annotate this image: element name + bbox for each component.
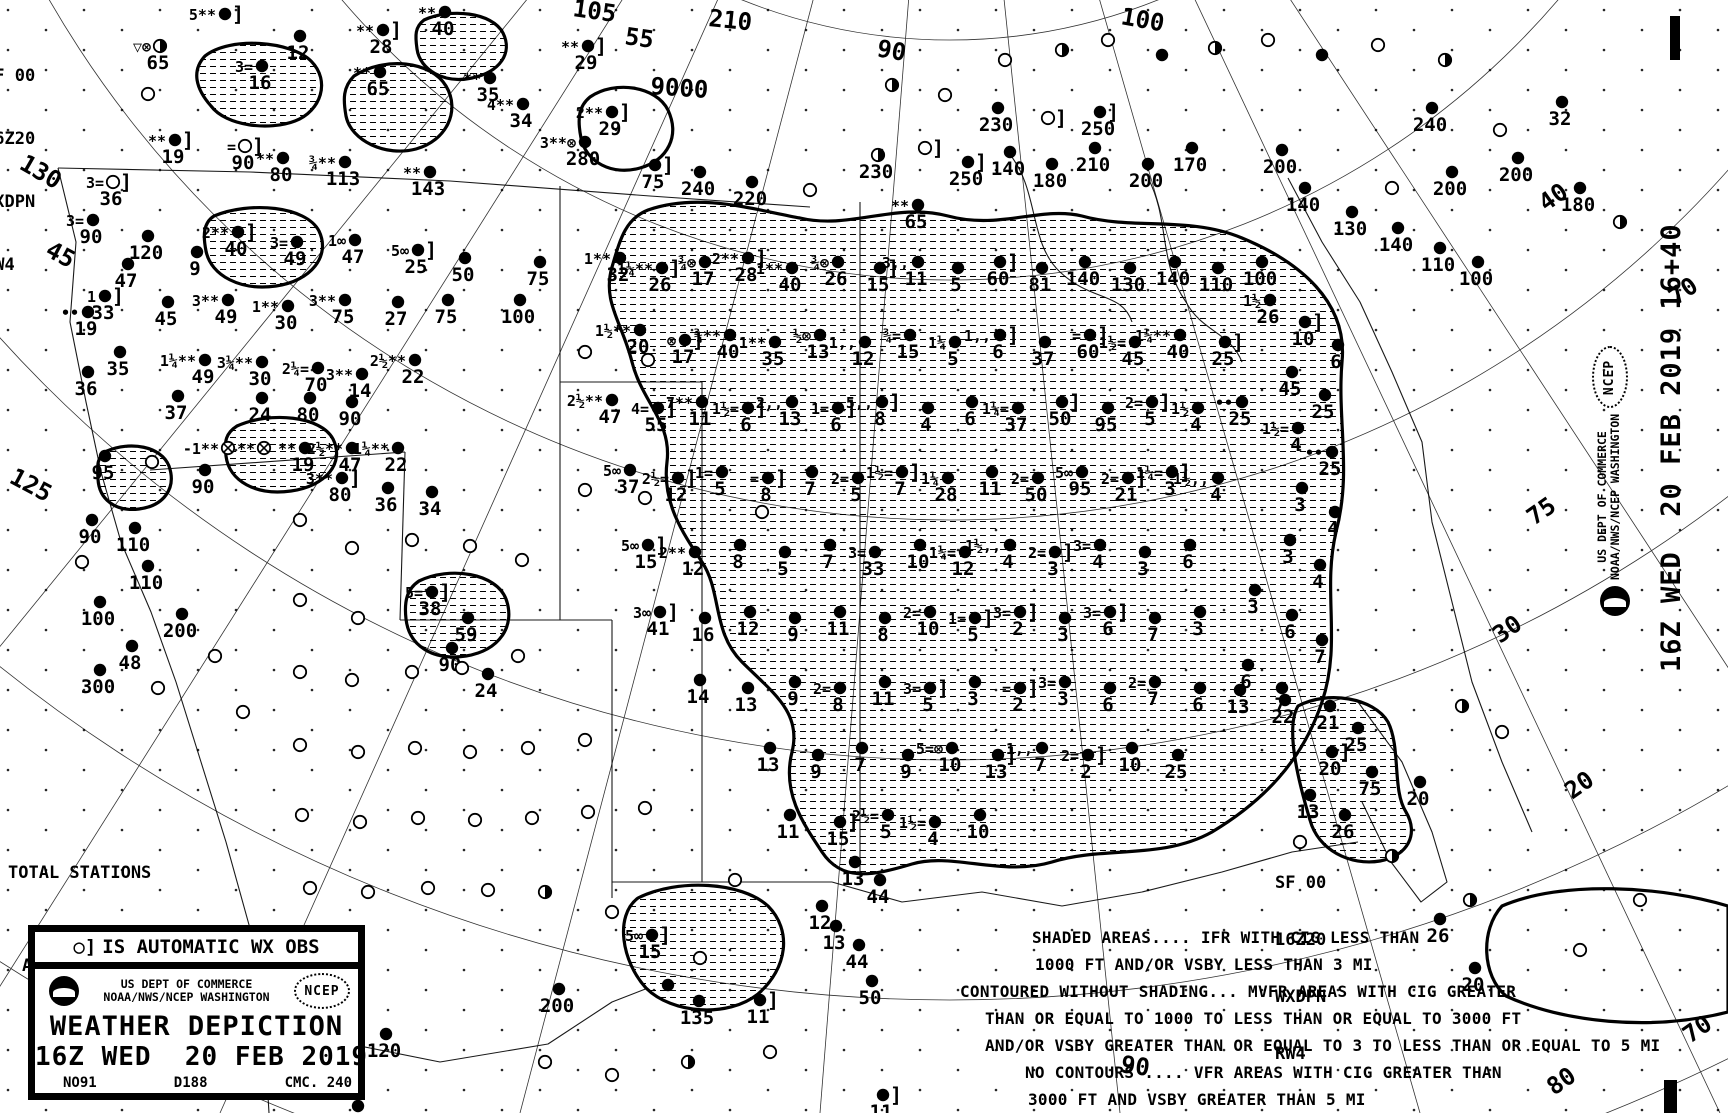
feed-line: WXDPN (0, 192, 35, 213)
station-wx-symbol: 3,, (882, 254, 909, 272)
station-value: 13 (985, 761, 1008, 783)
station-plot (482, 884, 494, 896)
station-wx-symbol: ¾** (309, 154, 336, 172)
feed-line: RW4 (0, 255, 35, 276)
station-value: 3 (967, 688, 978, 710)
note-no-contours-2: 3000 FT AND VSBY GREATER THAN 5 MI (1028, 1090, 1366, 1109)
station-value: 8 (760, 484, 771, 506)
station-plot (939, 89, 951, 101)
station-wx-symbol: 5=⊗ (916, 740, 943, 758)
station-wx-symbol: ¾= (883, 327, 901, 345)
station-wx-symbol: ⊗ (667, 332, 676, 350)
station-wx-symbol: 1½,, (1173, 470, 1209, 488)
station-value: 8 (832, 694, 843, 716)
station-value: 140 (991, 158, 1025, 180)
station-plot (406, 666, 418, 678)
station-plot (294, 739, 306, 751)
station-value: 110 (116, 534, 150, 556)
auto-obs-bracket: ] (1007, 323, 1019, 347)
station-value: 34 (419, 498, 442, 520)
agency-line1: US DEPT OF COMMERCE (1595, 431, 1609, 563)
auto-obs-bracket: ] (889, 390, 901, 414)
station-value: 6 (1102, 618, 1113, 640)
station-value: 10 (1119, 754, 1142, 776)
station-value: 10 (1292, 328, 1315, 350)
station-value: 8 (877, 624, 888, 646)
station-value: 230 (859, 161, 893, 183)
station-plot (464, 540, 476, 552)
note-contoured-3: AND/OR VSBY GREATER THAN OR EQUAL TO 3 T… (985, 1036, 1660, 1055)
station-wx-symbol: ** (561, 38, 579, 56)
station-value: 45 (155, 308, 178, 330)
station-plot (606, 906, 618, 918)
station-value: 4 (1092, 551, 1103, 573)
station-plot (1439, 54, 1451, 66)
station-plot (1614, 216, 1626, 228)
station-wx-symbol: 1= (948, 610, 966, 628)
auto-obs-bracket: ] (937, 676, 949, 700)
station-value: 6 (1102, 694, 1113, 716)
station-value: 110 (1421, 254, 1455, 276)
station-plot (804, 184, 816, 196)
station-plot (1456, 700, 1468, 712)
station-wx-symbol: ** (237, 440, 255, 458)
station-value: 24 (249, 404, 272, 426)
graticule-label: 90 (875, 34, 908, 67)
station-plot (582, 806, 594, 818)
station-value: 44 (867, 886, 890, 908)
station-wx-symbol: 3= (270, 234, 288, 252)
station-value: 3 (1047, 558, 1058, 580)
station-wx-symbol: 1½ (1171, 400, 1189, 418)
station-value: 100 (1243, 268, 1277, 290)
station-plot (152, 682, 164, 694)
auto-obs-bracket: ] (1055, 106, 1067, 130)
station-value: 10 (967, 821, 990, 843)
station-value: 135 (680, 1007, 714, 1029)
station-value: 120 (129, 242, 163, 264)
station-wx-symbol: 2½** (567, 392, 603, 410)
station-value: 4 (1327, 518, 1338, 540)
station-wx-symbol: ** (403, 164, 421, 182)
station-wx-symbol: 1½= (712, 400, 739, 418)
station-wx-symbol: 2= (813, 680, 831, 698)
station-wx-symbol: ¾⊗ (811, 254, 829, 272)
station-plot (294, 666, 306, 678)
station-wx-symbol: = (1002, 680, 1011, 698)
station-wx-symbol: 1¼** (160, 352, 196, 370)
station-value: 3 (1192, 618, 1203, 640)
station-plot (539, 1056, 551, 1068)
station-wx-symbol: 1½,, (965, 537, 1001, 555)
station-value: 200 (540, 995, 574, 1017)
legend-footer: NO91 D188 CMC. 240 (35, 1072, 358, 1091)
station-wx-symbol: 3= (1083, 604, 1101, 622)
station-wx-symbol: 1¼ (921, 470, 939, 488)
station-wx-symbol: ** (418, 4, 436, 22)
footer-mid: D188 (174, 1075, 208, 1091)
station-value: 25 (1165, 761, 1188, 783)
station-plot (579, 484, 591, 496)
station-wx-symbol: 3= (86, 174, 104, 192)
station-value: 180 (1033, 170, 1067, 192)
station-value: 50 (452, 264, 475, 286)
station-value: 230 (979, 114, 1013, 136)
station-plot (516, 554, 528, 566)
station-value: 13 (757, 754, 780, 776)
station-wx-symbol: 5∞ (621, 537, 639, 555)
station-wx-symbol: •• (1215, 394, 1233, 412)
station-wx-symbol: 4** (487, 96, 514, 114)
station-plot (146, 456, 158, 468)
station-value: 7 (1034, 754, 1045, 776)
station-value: 22 (1272, 706, 1295, 728)
ncep-label: NCEP (1603, 359, 1618, 394)
station-value: 120 (367, 1040, 401, 1062)
station-wx-symbol: 1,, (829, 334, 856, 352)
station-value: 3 (1057, 624, 1068, 646)
feed-id-top-left: SF 00 16Z20 WXDPN RW4 (0, 24, 35, 318)
station-value: 200 (1499, 164, 1533, 186)
station-plot (1386, 182, 1398, 194)
station-value: 90 (192, 476, 215, 498)
station-wx-symbol: 3= (235, 58, 253, 76)
station-value: 11 (747, 1006, 770, 1028)
station-value: 5 (850, 484, 861, 506)
station-plot (76, 556, 88, 568)
station-value: 2 (1012, 618, 1023, 640)
station-wx-symbol: = (750, 470, 759, 488)
station-value: 12 (737, 618, 760, 640)
agency-text: US DEPT OF COMMERCENOAA/NWS/NCEP WASHING… (103, 978, 269, 1004)
station-wx-symbol: ** (148, 132, 166, 150)
station-wx-symbol: 2** (659, 544, 686, 562)
station-value: 13 (735, 694, 758, 716)
station-wx-symbol: 1½ (1243, 292, 1261, 310)
station-wx-symbol: •• (61, 304, 79, 322)
station-value: 20 (1407, 788, 1430, 810)
station-value: 130 (1333, 218, 1367, 240)
agency-row: US DEPT OF COMMERCENOAA/NWS/NCEP WASHING… (35, 969, 358, 1009)
station-value: 11 (872, 688, 895, 710)
station-wx-symbol: 5∞ (391, 242, 409, 260)
note-contoured-2: THAN OR EQUAL TO 1000 TO LESS THAN OR EQ… (985, 1009, 1521, 1028)
station-wx-symbol: 3**⊗ (540, 134, 576, 152)
station-wx-symbol: ** (256, 150, 274, 168)
station-value: 8 (732, 551, 743, 573)
station-plot (296, 809, 308, 821)
station-value: 170 (1173, 154, 1207, 176)
station-value: 26 (1427, 925, 1450, 947)
station-wx-symbol: = (227, 138, 236, 156)
station-wx-symbol: 2½= (642, 470, 669, 488)
station-wx-symbol: 2¼= (282, 360, 309, 378)
station-value: 6 (1284, 621, 1295, 643)
neat-line-bar (1670, 16, 1680, 60)
weather-depiction-chart: ]5**12163=]28**65**40**35**344**]29**]29… (0, 0, 1728, 1113)
station-value: 14 (687, 686, 710, 708)
neat-line-bar (1664, 1080, 1677, 1113)
auto-obs-label: IS AUTOMATIC WX OBS (102, 936, 319, 958)
station-value: 140 (1379, 234, 1413, 256)
auto-obs-row: ○] IS AUTOMATIC WX OBS (35, 932, 358, 969)
footer-left: NO91 (63, 1075, 97, 1091)
station-wx-symbol: 3¼** (217, 354, 253, 372)
station-plot (999, 54, 1011, 66)
station-wx-symbol: 1∞ (328, 232, 346, 250)
station-plot (1262, 34, 1274, 46)
graticule-label: 210 (707, 4, 753, 36)
station-wx-symbol: 3= (66, 212, 84, 230)
station-wx-symbol: 5= (405, 584, 423, 602)
station-value: 15 (867, 274, 890, 296)
station-value: 9 (787, 688, 798, 710)
station-value: 6 (1330, 351, 1341, 373)
station-value: 140 (1286, 194, 1320, 216)
station-wx-symbol: 1** (252, 298, 279, 316)
station-plot (469, 814, 481, 826)
station-plot (1209, 42, 1221, 54)
station-value: 6 (740, 414, 751, 436)
noaa-logo-icon (1600, 586, 1630, 616)
summary-line: TOTAL STATIONS (8, 858, 172, 889)
station-wx-symbol: = (1072, 327, 1081, 345)
station-wx-symbol: 3** (306, 470, 333, 488)
station-wx-symbol: 2½= (852, 807, 879, 825)
feed-line: 16Z20 (0, 129, 35, 150)
station-wx-symbol: 1,, (1006, 740, 1033, 758)
station-wx-symbol: 1½= (1099, 334, 1126, 352)
station-value: 48 (119, 652, 142, 674)
station-plot (1634, 894, 1646, 906)
station-wx-symbol: 2= (1125, 394, 1143, 412)
station-value: 25 (1312, 401, 1335, 423)
station-value: 210 (1076, 154, 1110, 176)
station-value: 95 (92, 462, 115, 484)
station-value: 27 (385, 308, 408, 330)
chart-title: WEATHER DEPICTION (35, 1011, 358, 1042)
station-wx-symbol: 2½** (307, 440, 343, 458)
station-wx-symbol: 1¼** (617, 260, 653, 278)
timestamp-vertical: 16Z WED 20 FEB 2019 16+40 (1656, 223, 1687, 672)
station-plot (522, 742, 534, 754)
agency-line2: NOAA/NWS/NCEP WASHINGTON (103, 990, 269, 1004)
station-plot (354, 816, 366, 828)
station-plot (579, 734, 591, 746)
station-wx-symbol: 1½= (899, 814, 926, 832)
station-plot (512, 650, 524, 662)
station-value: 5 (777, 558, 788, 580)
station-value: 90 (339, 408, 362, 430)
station-wx-symbol: 2= (1101, 470, 1119, 488)
station-value: 5 (967, 624, 978, 646)
station-value: 240 (681, 178, 715, 200)
station-value: 13 (1227, 696, 1250, 718)
station-wx-symbol: ** (356, 22, 374, 40)
station-wx-symbol: 2= (903, 604, 921, 622)
station-value: 75 (435, 306, 458, 328)
station-plot (294, 594, 306, 606)
station-wx-symbol: 1= (695, 464, 713, 482)
station-value: 4 (1002, 551, 1013, 573)
feed-line: SF 00 (0, 66, 35, 87)
station-value: 3 (1247, 596, 1258, 618)
station-value: 13 (823, 932, 846, 954)
station-plot (352, 746, 364, 758)
station-value: 100 (81, 608, 115, 630)
station-value: 9 (787, 624, 798, 646)
station-value: 7 (894, 478, 905, 500)
ncep-logo-icon: NCEP (294, 973, 350, 1009)
station-plot (694, 952, 706, 964)
station-plot (362, 886, 374, 898)
auto-obs-bracket: ] (1117, 600, 1129, 624)
station-wx-symbol: 5** (189, 6, 216, 24)
station-value: 200 (163, 620, 197, 642)
station-wx-symbol: 1¼= (982, 400, 1009, 418)
station-value: 50 (1049, 408, 1072, 430)
station-value: 5 (947, 348, 958, 370)
station-plot (1496, 726, 1508, 738)
station-wx-symbol: 1 (87, 288, 96, 306)
note-shaded-areas-2: 1000 FT AND/OR VSBY LESS THAN 3 MI (1035, 955, 1373, 974)
station-value: 60 (987, 268, 1010, 290)
auto-obs-bracket: ] (1095, 743, 1107, 767)
station-value: 36 (375, 494, 398, 516)
station-value: 3 (1282, 546, 1293, 568)
station-plot (346, 542, 358, 554)
station-value: 5 (880, 821, 891, 843)
station-wx-symbol: 4= (631, 400, 649, 418)
station-wx-symbol: 1¼** (1135, 327, 1171, 345)
station-value: 7 (1147, 688, 1158, 710)
station-plot (464, 746, 476, 758)
station-wx-symbol: 2½** (370, 352, 406, 370)
station-value: 3 (1057, 688, 1068, 710)
station-value: 37 (165, 402, 188, 424)
station-value: 250 (949, 168, 983, 190)
ncep-logo-icon: NCEP (1592, 346, 1628, 408)
station-plot (539, 886, 551, 898)
station-value: 6 (830, 414, 841, 436)
station-value: 11 (870, 1101, 893, 1113)
station-plot (1494, 124, 1506, 136)
station-wx-symbol: 1** (584, 250, 611, 268)
station-value: 7 (804, 478, 815, 500)
station-value: 200 (1129, 170, 1163, 192)
station-value: 10 (907, 551, 930, 573)
station-value: 11 (827, 618, 850, 640)
station-value: 13 (842, 868, 865, 890)
station-wx-symbol: 2= (1128, 674, 1146, 692)
station-plot (729, 874, 741, 886)
station-wx-symbol: ▽⊗ (133, 38, 151, 56)
station-wx-symbol: 5∞ (625, 927, 643, 945)
station-value: 100 (501, 306, 535, 328)
station-value: 8 (874, 408, 885, 430)
station-value: 44 (846, 951, 869, 973)
station-plot (579, 346, 591, 358)
station-value: 200 (1433, 178, 1467, 200)
station-wx-symbol: 3= (1073, 537, 1091, 555)
station-wx-symbol: 3∞ (633, 604, 651, 622)
station-wx-symbol: 1¼ (928, 334, 946, 352)
station-value: 12 (809, 912, 832, 934)
station-wx-symbol: •• (1305, 444, 1323, 462)
station-value: 9 (189, 258, 200, 280)
station-wx-symbol: 1½= (1262, 420, 1289, 438)
note-shaded-areas-1: SHADED AREAS.... IFR WITH CIG LESS THAN (1032, 928, 1419, 947)
station-value: 5 (714, 478, 725, 500)
station-wx-symbol: 3** (309, 292, 336, 310)
station-wx-symbol: ¾** (694, 327, 721, 345)
station-value: 24 (475, 680, 498, 702)
station-value: 26 (1332, 821, 1355, 843)
station-value: 21 (1317, 712, 1340, 734)
auto-obs-bracket: ] (232, 2, 244, 26)
station-wx-symbol: 7** (666, 394, 693, 412)
graticule-label: 9000 (650, 72, 710, 104)
station-wx-symbol: 1,, (964, 327, 991, 345)
station-value: 32 (1549, 108, 1572, 130)
station-value: 5 (1144, 408, 1155, 430)
station-value: 36 (75, 378, 98, 400)
station-wx-symbol: 1** (739, 334, 766, 352)
station-plot (1386, 850, 1398, 862)
station-value: 7 (854, 754, 865, 776)
station-value: 4 (1210, 484, 1221, 506)
graticule-label: 55 (623, 22, 656, 54)
station-plot (606, 1069, 618, 1081)
station-value: 2 (1080, 761, 1091, 783)
station-value: 5 (950, 274, 961, 296)
station-wx-symbol: 1** (756, 260, 783, 278)
station-plot (406, 534, 418, 546)
station-value: 12 (287, 42, 310, 64)
station-plot (886, 79, 898, 91)
station-plot (456, 662, 468, 674)
station-value: 25 (1212, 348, 1235, 370)
station-value: 2 (1012, 694, 1023, 716)
station-wx-symbol: 2= (1061, 747, 1079, 765)
station-plot (1372, 39, 1384, 51)
station-value: 110 (129, 572, 163, 594)
station-wx-symbol: 3= (903, 680, 921, 698)
station-wx-symbol: 2= (831, 470, 849, 488)
station-plot (756, 506, 768, 518)
station-value: 90 (79, 526, 102, 548)
station-value: 6 (964, 408, 975, 430)
station-wx-symbol: 1= (811, 400, 829, 418)
station-plot (639, 492, 651, 504)
station-wx-symbol: 2= (1028, 544, 1046, 562)
station-plot (1056, 44, 1068, 56)
station-value: 3 (1294, 494, 1305, 516)
station-plot (412, 812, 424, 824)
station-plot (352, 612, 364, 624)
station-plot (764, 1046, 776, 1058)
station-value: 100 (1459, 268, 1493, 290)
station-circle-icon: ○] (73, 936, 96, 958)
station-wx-symbol: -1** (183, 440, 219, 458)
legend-box: ○] IS AUTOMATIC WX OBS US DEPT OF COMMER… (28, 925, 365, 1100)
station-value: 5 (922, 694, 933, 716)
station-value: 59 (455, 624, 478, 646)
station-plot (346, 674, 358, 686)
station-value: 13 (1297, 801, 1320, 823)
station-value: 9 (900, 761, 911, 783)
station-value: 200 (1263, 156, 1297, 178)
